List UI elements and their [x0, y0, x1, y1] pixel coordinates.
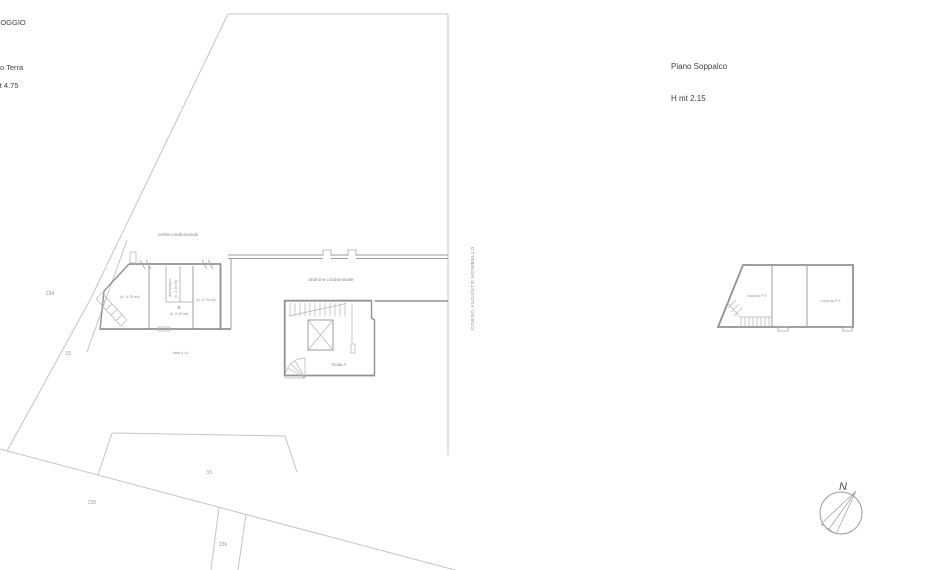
room-left-height-label: (h. 4.75 mt): [120, 295, 140, 299]
elevator-shaft: [308, 320, 333, 350]
titles: ALLOGGIO Piano Terra H mt 4.75 Piano Sop…: [0, 18, 728, 103]
parcel-33-upper-label: 33: [65, 351, 71, 357]
right-height-label: H mt 2.15: [671, 94, 706, 103]
compass-north-label: N: [839, 481, 847, 493]
courtyard-label: cortile condominiale: [158, 232, 199, 237]
void-right-label: vuoto su P.T.: [821, 299, 842, 303]
parcel-234-label: 234: [46, 291, 55, 297]
floorplan-page: N ALLOGGIO Piano Terra H mt 4.75 Piano S…: [0, 0, 932, 570]
void-left-label: vuoto su P.T.: [747, 294, 768, 298]
lower-strip-top: [112, 433, 285, 436]
left-title: ALLOGGIO: [0, 18, 26, 27]
stair-label: scala A: [332, 362, 348, 367]
parcel-33-lower-label: 33: [206, 470, 212, 476]
parcel-235-label: 235: [88, 500, 97, 506]
hall-door-notch-2: [348, 250, 356, 256]
pillar-tick: [130, 252, 136, 263]
floorplan-canvas: N ALLOGGIO Piano Terra H mt 4.75 Piano S…: [0, 0, 932, 570]
left-height-label: H mt 4.75: [0, 81, 19, 90]
plan-labels: cortile condominiale androne condominial…: [120, 232, 841, 367]
stair-flight-treads: [289, 303, 346, 317]
hallway-label: disimpegno: [168, 279, 172, 297]
right-floor-label: Piano Soppalco: [671, 62, 728, 71]
street-name-label: CORSO AUGUSTO MOMBELLO: [470, 246, 476, 330]
left-floor-label: Piano Terra: [0, 63, 24, 72]
compass-rose: N: [820, 481, 862, 534]
stairwell-right-wall: [372, 301, 375, 376]
stairwell-door-leaf: [351, 344, 355, 353]
other-unit-label: altra u.i.u.: [173, 351, 190, 355]
unit-height-label: (h. 2.40 mt): [170, 312, 188, 316]
hall-label: androne condominiale: [308, 277, 354, 282]
room-right-height-label: (h. 4.75 mt): [196, 298, 216, 302]
mezzanine-plan: [718, 265, 853, 331]
stairwell-block: [284, 300, 375, 378]
mezzanine-outline: [718, 265, 853, 327]
mezzanine-stair-treads: [727, 300, 772, 326]
entrance-hall: [228, 250, 448, 301]
parcel-boundary-lines: [0, 14, 455, 570]
lower-strip-left: [98, 433, 112, 475]
parcel-236-left-edge: [211, 507, 219, 570]
hall-door-notch-1: [323, 250, 331, 256]
lower-boundary-line: [0, 449, 455, 570]
ground-floor-apartment: [96, 252, 231, 331]
parcel-236-label: 236: [219, 542, 228, 548]
unit-label: B: [177, 305, 180, 310]
lower-strip-right: [285, 436, 297, 472]
parcel-236-right-edge: [238, 514, 246, 570]
hallway-height-label: (h. 2.40 mt): [174, 280, 178, 298]
